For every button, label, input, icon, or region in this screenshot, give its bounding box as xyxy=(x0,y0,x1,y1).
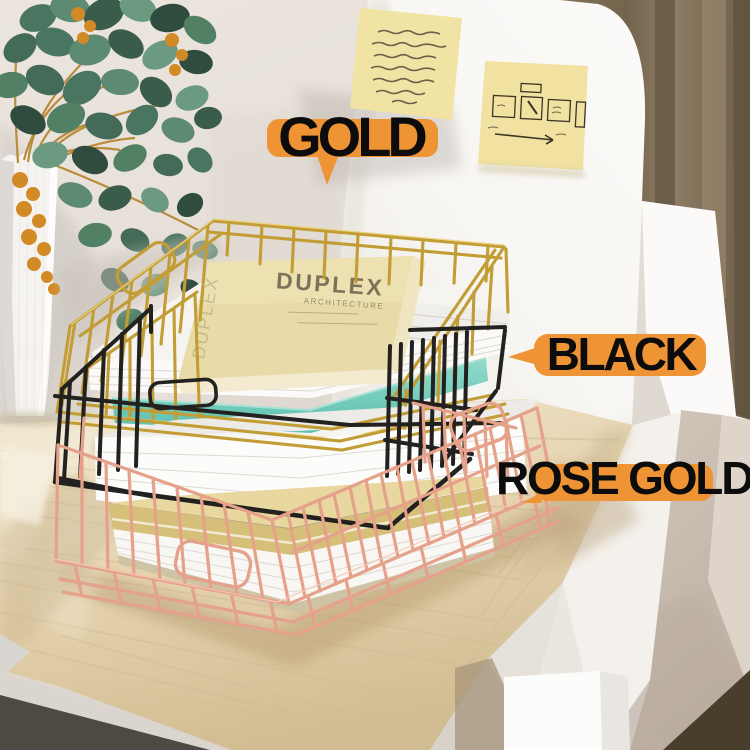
svg-text:ROSE GOLD: ROSE GOLD xyxy=(496,452,750,504)
svg-text:BLACK: BLACK xyxy=(547,328,698,380)
svg-text:GOLD: GOLD xyxy=(278,105,426,168)
